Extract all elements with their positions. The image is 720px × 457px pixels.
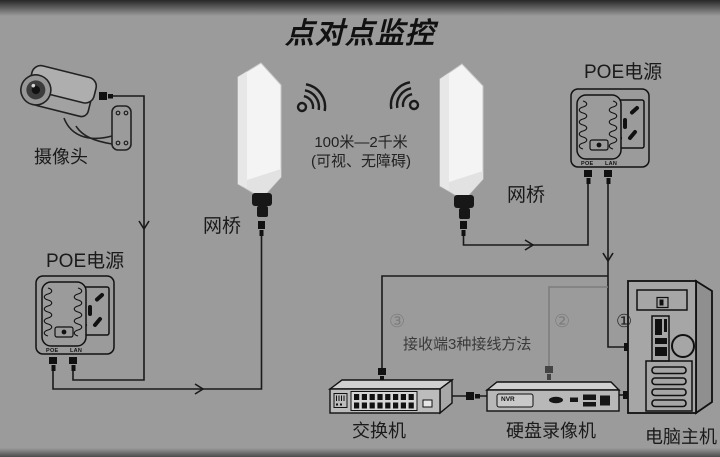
wifi-signal-left-icon	[289, 80, 330, 122]
cable-branch-method3-to-switch	[382, 276, 608, 368]
camera-label: 摄像头	[34, 143, 88, 169]
desktop-tower-icon	[628, 281, 712, 413]
wiring-note: 接收端3种接线方法	[403, 333, 531, 354]
dvr-badge: NVR	[501, 396, 515, 403]
dvr-recorder-icon: NVR	[487, 382, 619, 411]
poe-left-label: POE电源	[46, 246, 124, 273]
dvr-label: 硬盘录像机	[506, 417, 596, 443]
diagram-stage: POE LAN POE LAN	[0, 0, 720, 457]
rj45-plug-gray-icon	[545, 366, 553, 380]
wifi-signal-right-icon	[386, 78, 427, 120]
lan-port-label: LAN	[605, 161, 617, 167]
poe-port-label: POE	[581, 161, 594, 167]
diagram-title: 点对点监控	[0, 10, 720, 52]
wireless-bridge-left-icon	[238, 63, 281, 236]
wireless-bridge-right-icon	[440, 64, 483, 236]
poe-injector-left-icon: POE LAN	[36, 276, 114, 371]
switch-label: 交换机	[352, 417, 406, 443]
method-2-badge: ②	[554, 312, 570, 330]
poe-right-label: POE电源	[584, 57, 662, 84]
poe-injector-right-icon: POE LAN	[571, 89, 649, 184]
distance-range: 100米—2千米	[283, 133, 439, 152]
pc-label: 电脑主机	[645, 423, 717, 449]
bridge-right-label: 网桥	[507, 180, 545, 207]
cctv-camera-icon	[18, 62, 131, 150]
network-switch-icon	[330, 380, 452, 413]
distance-condition: (可视、无障碍)	[283, 152, 439, 171]
method-3-badge: ③	[389, 312, 405, 330]
bridge-left-label: 网桥	[203, 211, 241, 238]
poe-port-label: POE	[46, 348, 59, 354]
method-1-badge: ①	[616, 312, 632, 330]
wireless-distance: 100米—2千米 (可视、无障碍)	[283, 133, 439, 171]
lan-port-label: LAN	[70, 348, 82, 354]
